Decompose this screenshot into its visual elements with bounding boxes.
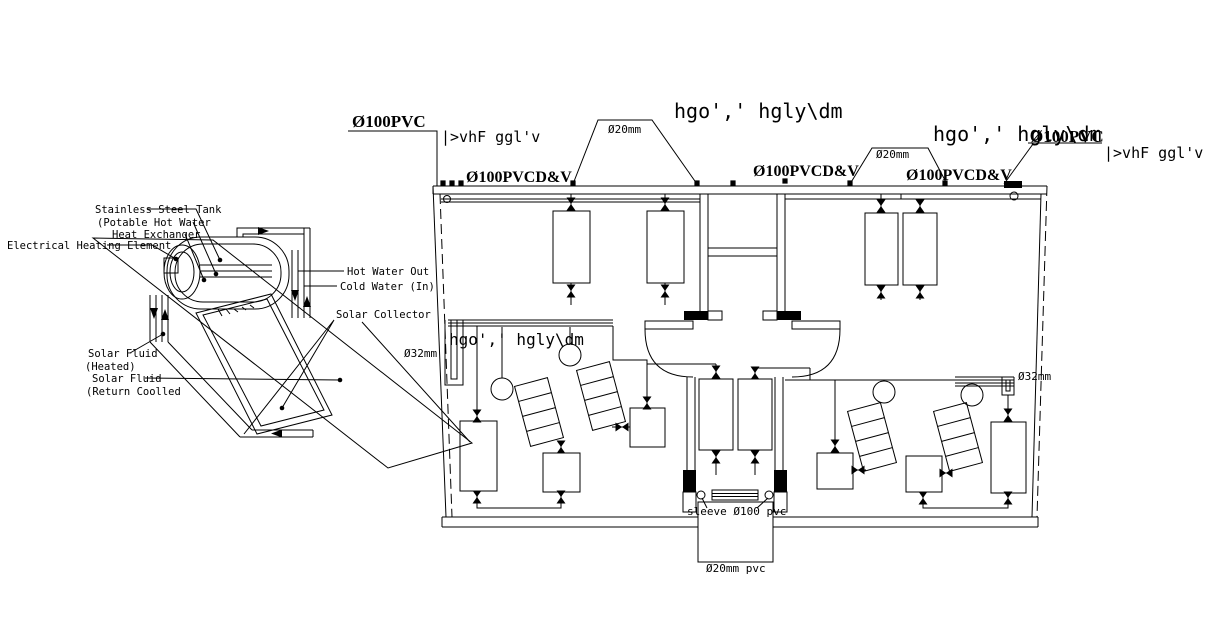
doors [645, 311, 840, 377]
label-solar-collector: Solar Collector [336, 309, 431, 321]
solar-tank-circle [961, 384, 983, 406]
label-solar-fluid-return: Solar Fluid [92, 373, 162, 385]
unit-box [906, 456, 942, 492]
solar-tank-circle [873, 381, 895, 403]
room-lower-right [785, 377, 1026, 508]
solar-collector-plan [934, 403, 983, 472]
corridor-tanks [647, 364, 810, 475]
door-right-swing [792, 329, 840, 377]
label-vent-left: |>vhF ggl'v [441, 128, 540, 146]
label-d20-bottom: Ø20mm pvc [706, 562, 766, 575]
label-pvcdv-right: Ø100PVCD&V [906, 167, 1012, 184]
label-potable-hot-water: (Potable Hot Water [97, 217, 211, 229]
tank [903, 213, 937, 285]
label-solar-fluid-heated-2: (Heated) [85, 361, 136, 373]
cad-sheet: Stainless Steel Tank (Potable Hot Water … [0, 0, 1217, 636]
label-pvc-top-right: Ø100PVC [1030, 127, 1104, 146]
cad-drawing: Stainless Steel Tank (Potable Hot Water … [0, 0, 1217, 636]
tank [460, 421, 497, 491]
room-upper-left [441, 194, 700, 305]
room-upper-right [785, 194, 1041, 300]
tank [865, 213, 898, 285]
label-pvcdv-center: Ø100PVCD&V [753, 163, 859, 180]
label-solar-fluid-return-2: (Return Coolled [86, 386, 181, 398]
door-right [792, 321, 840, 329]
roof-plan: Ø100PVC |>vhF ggl'v Ø100PVCD&V Ø20mm hgo… [348, 99, 1203, 575]
label-d20-left: Ø20mm [608, 123, 641, 136]
unit-box [543, 453, 580, 492]
tank [647, 211, 684, 283]
door-left [645, 321, 693, 329]
solar-collector-plan [515, 378, 564, 447]
tank [553, 211, 590, 283]
unit-box [630, 408, 665, 447]
label-electrical-heating-element: Electrical Heating Element [7, 240, 171, 252]
tank [991, 422, 1026, 493]
label-room-title: hgo',' hgly\dm [449, 330, 584, 349]
label-vent-right: |>vhF ggl'v [1104, 144, 1203, 162]
label-title-top: hgo',' hgly\dm [674, 99, 843, 123]
storage-tank [164, 237, 289, 309]
unit-box [817, 453, 853, 489]
door-left-swing [645, 329, 693, 377]
sleeve-end-left [697, 491, 705, 499]
label-pvcdv-left: Ø100PVCD&V [466, 169, 572, 186]
center-walls [700, 194, 785, 311]
label-d20-right: Ø20mm [876, 148, 909, 161]
solar-collector-plan [577, 362, 626, 431]
tank [699, 379, 733, 450]
sleeve-end-right [765, 491, 773, 499]
solar-collector-plan [848, 403, 897, 472]
label-sleeve: sleeve Ø100 pvc [687, 505, 786, 518]
label-solar-fluid-heated: Solar Fluid [88, 348, 158, 360]
solar-heater-detail: Stainless Steel Tank (Potable Hot Water … [7, 204, 472, 468]
sleeve-pipe [712, 490, 758, 500]
collector-panel [196, 294, 332, 434]
label-d32-right: Ø32mm [1018, 370, 1051, 383]
label-d32-left: Ø32mm [404, 347, 437, 360]
label-pvc-top-left: Ø100PVC [352, 112, 426, 131]
label-hot-water-out: Hot Water Out [347, 266, 429, 278]
solar-tank-circle [491, 378, 513, 400]
tank [738, 379, 772, 450]
plan-walls [433, 186, 1047, 527]
label-cold-water-in: Cold Water (In) [340, 281, 435, 293]
label-stainless-steel-tank: Stainless Steel Tank [95, 204, 222, 216]
